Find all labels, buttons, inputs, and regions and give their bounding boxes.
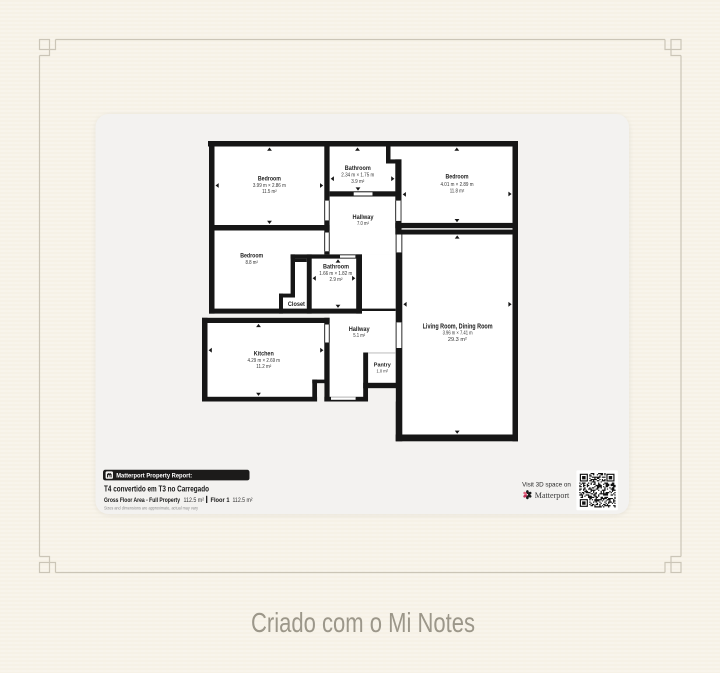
svg-text:3.96 m × 7.41 m: 3.96 m × 7.41 m	[443, 331, 473, 337]
svg-text:Pantry: Pantry	[374, 362, 392, 368]
svg-text:5.1 m²: 5.1 m²	[353, 333, 365, 339]
svg-text:7.0 m²: 7.0 m²	[357, 221, 369, 227]
svg-text:11.8 m²: 11.8 m²	[450, 188, 465, 194]
svg-text:Matterport: Matterport	[535, 490, 570, 500]
svg-text:Bedroom: Bedroom	[258, 176, 281, 182]
svg-text:Floor 1 112.5 m²: Floor 1 112.5 m²	[211, 497, 253, 504]
svg-text:Kitchen: Kitchen	[254, 351, 274, 357]
svg-text:Bedroom: Bedroom	[446, 175, 469, 181]
svg-text:Bathroom: Bathroom	[323, 264, 349, 270]
svg-text:3.9 m²: 3.9 m²	[351, 179, 364, 185]
svg-text:Matterport Property Report:: Matterport Property Report:	[116, 474, 192, 480]
svg-text:Bathroom: Bathroom	[345, 166, 371, 172]
svg-text:Gross Floor Area - Full Proper: Gross Floor Area - Full Property 112.5 m…	[104, 497, 204, 504]
svg-text:3.99 m × 2.86 m: 3.99 m × 2.86 m	[253, 183, 286, 189]
svg-text:8.8 m²: 8.8 m²	[245, 260, 258, 266]
svg-text:Living Room, Dining Room: Living Room, Dining Room	[423, 322, 493, 331]
svg-text:11.5 m²: 11.5 m²	[262, 189, 277, 195]
svg-text:1.66 m × 1.82 m: 1.66 m × 1.82 m	[319, 271, 352, 277]
svg-text:Criado com o Mi Notes: Criado com o Mi Notes	[251, 607, 475, 638]
svg-text:11.2 m²: 11.2 m²	[256, 364, 271, 370]
svg-text:4.29 m × 2.69 m: 4.29 m × 2.69 m	[248, 358, 281, 364]
svg-text:Closet: Closet	[288, 301, 305, 308]
svg-text:2.9 m²: 2.9 m²	[330, 277, 343, 283]
svg-text:Hallway: Hallway	[353, 215, 375, 221]
svg-text:2.34 m × 1.75 m: 2.34 m × 1.75 m	[341, 173, 374, 179]
svg-text:4.01 m × 2.89 m: 4.01 m × 2.89 m	[441, 182, 474, 188]
svg-text:Bedroom: Bedroom	[240, 254, 263, 260]
svg-text:29.3 m²: 29.3 m²	[448, 337, 467, 343]
svg-text:Hallway: Hallway	[349, 327, 371, 333]
svg-text:1.0 m²: 1.0 m²	[377, 368, 389, 374]
svg-text:T4 convertido em T3 no Carrega: T4 convertido em T3 no Carregado	[104, 485, 209, 494]
svg-text:Visit 3D space on: Visit 3D space on	[522, 481, 571, 488]
svg-text:Sizes and dimensions are appro: Sizes and dimensions are approximate, ac…	[104, 505, 199, 510]
